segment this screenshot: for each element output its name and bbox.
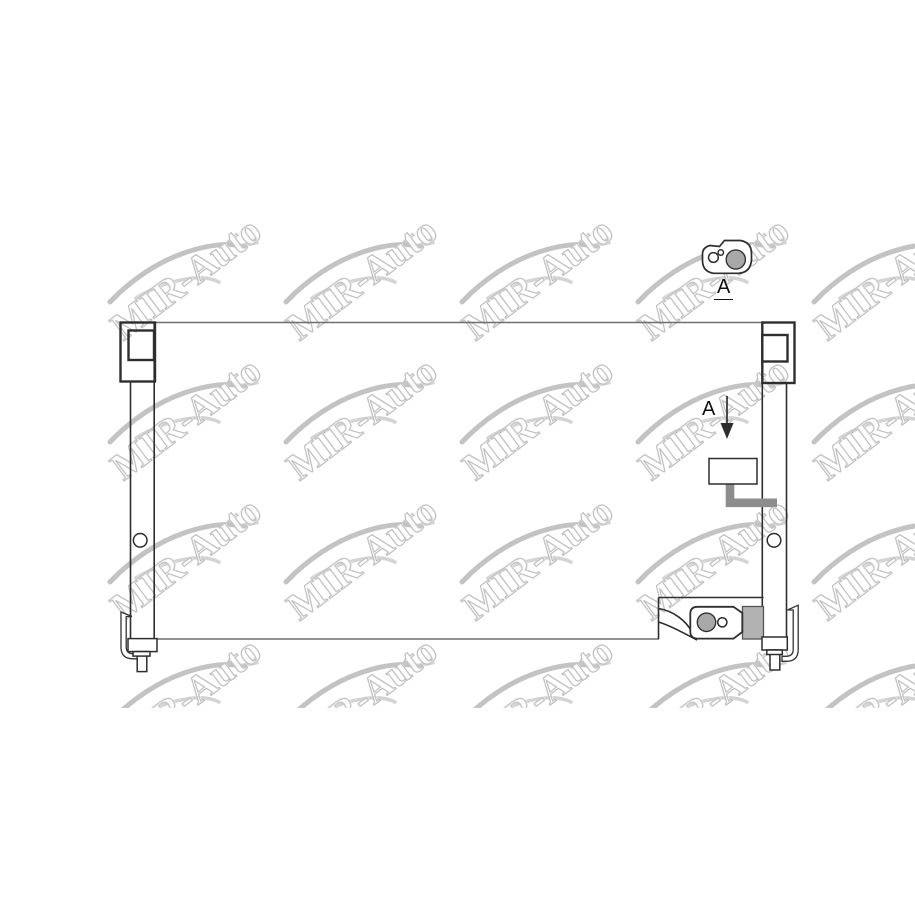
outlet-fitting-assembly [659, 598, 764, 641]
section-arrow [721, 396, 734, 439]
top-right-mount-bracket [762, 323, 794, 384]
receiver-pipe-bracket [730, 484, 777, 503]
left-foot-collar [133, 652, 150, 657]
right-foot-collar [767, 650, 783, 655]
right-tank [762, 323, 794, 638]
right-foot [762, 605, 798, 670]
detail-port-large [726, 250, 745, 269]
right-mount-hole [767, 534, 781, 548]
top-right-bracket-notch [762, 335, 787, 362]
fitting-port-large [697, 613, 715, 631]
detail-port-small [709, 253, 719, 263]
condenser-core [154, 323, 762, 640]
right-foot-bracket [782, 605, 798, 661]
detail-view-a [703, 241, 752, 274]
left-mount-hole [133, 534, 147, 548]
left-foot [121, 612, 157, 672]
receiver-bracket [709, 459, 777, 503]
left-foot-pad [128, 639, 157, 652]
fitting-bolt-hole [718, 618, 727, 627]
right-foot-pad [762, 637, 787, 650]
section-arrow-head-icon [721, 423, 734, 439]
detail-view-label: A [714, 277, 733, 300]
condenser-drawing [0, 0, 915, 915]
section-arrow-label: A [702, 399, 715, 419]
technical-drawing-page: MIR-Auto MIR-Auto MIR-Auto MIR-Auto MIR-… [0, 0, 915, 915]
fitting-spacer-block [743, 607, 764, 640]
receiver-box [709, 459, 757, 485]
left-tank [121, 323, 156, 640]
detail-pin-hole [718, 250, 723, 255]
top-left-bracket-notch [129, 331, 155, 361]
